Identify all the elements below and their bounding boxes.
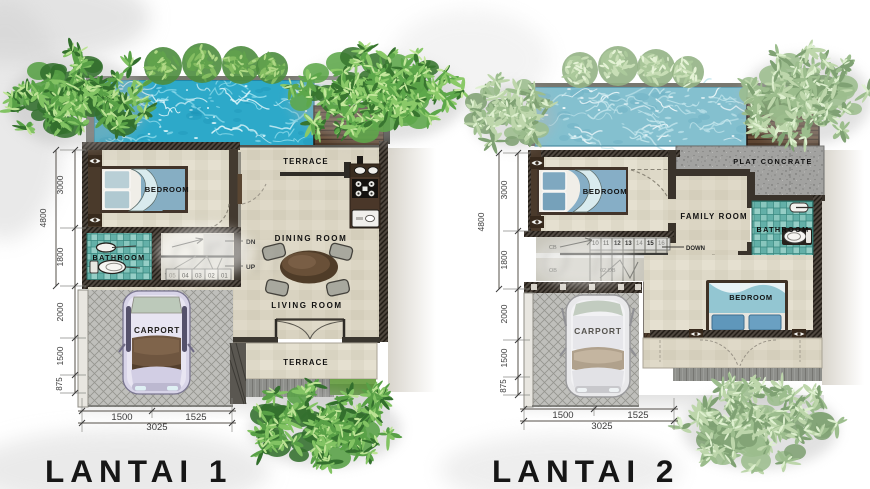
svg-text:LANTAI 2: LANTAI 2	[492, 453, 679, 489]
svg-text:3025: 3025	[146, 422, 167, 433]
svg-text:PLAT CONCRATE: PLAT CONCRATE	[733, 157, 813, 166]
svg-text:875: 875	[499, 379, 508, 393]
svg-text:15: 15	[647, 241, 654, 247]
svg-text:2000: 2000	[55, 302, 65, 321]
svg-text:1525: 1525	[627, 410, 648, 421]
svg-text:875: 875	[55, 377, 64, 391]
svg-text:13: 13	[625, 241, 632, 247]
svg-text:14: 14	[636, 241, 643, 247]
svg-text:2000: 2000	[499, 304, 509, 323]
svg-text:1525: 1525	[185, 412, 206, 423]
svg-text:3000: 3000	[55, 175, 65, 194]
svg-text:prim: prim	[166, 221, 285, 284]
svg-text:1500: 1500	[55, 346, 65, 365]
svg-text:BEDROOM: BEDROOM	[145, 185, 190, 194]
svg-text:4800: 4800	[38, 208, 48, 227]
svg-text:FAMILY ROOM: FAMILY ROOM	[680, 212, 747, 221]
svg-text:DINING ROOM: DINING ROOM	[275, 234, 348, 243]
svg-text:TERRACE: TERRACE	[283, 358, 328, 367]
svg-text:4800: 4800	[476, 212, 486, 231]
svg-text:BEDROOM: BEDROOM	[729, 293, 773, 302]
svg-text:CARPORT: CARPORT	[134, 326, 180, 335]
svg-text:LANTAI 1: LANTAI 1	[45, 453, 232, 489]
svg-text:LIVING ROOM: LIVING ROOM	[271, 301, 342, 310]
svg-text:DOWN: DOWN	[686, 246, 705, 252]
svg-text:3000: 3000	[499, 180, 509, 199]
svg-text:1500: 1500	[499, 348, 509, 367]
svg-text:16: 16	[658, 241, 665, 247]
svg-text:BATHROOM: BATHROOM	[757, 225, 810, 234]
svg-text:3025: 3025	[591, 421, 612, 432]
svg-text:CARPORT: CARPORT	[574, 326, 622, 336]
svg-text:1800: 1800	[499, 250, 509, 269]
svg-text:TERRACE: TERRACE	[283, 157, 328, 166]
svg-text:1500: 1500	[552, 410, 573, 421]
svg-text:BEDROOM: BEDROOM	[583, 187, 628, 196]
svg-text:1500: 1500	[111, 412, 132, 423]
svg-text:1800: 1800	[55, 247, 65, 266]
svg-text:o il: o il	[540, 225, 620, 288]
svg-text:BATHROOM: BATHROOM	[93, 253, 146, 262]
